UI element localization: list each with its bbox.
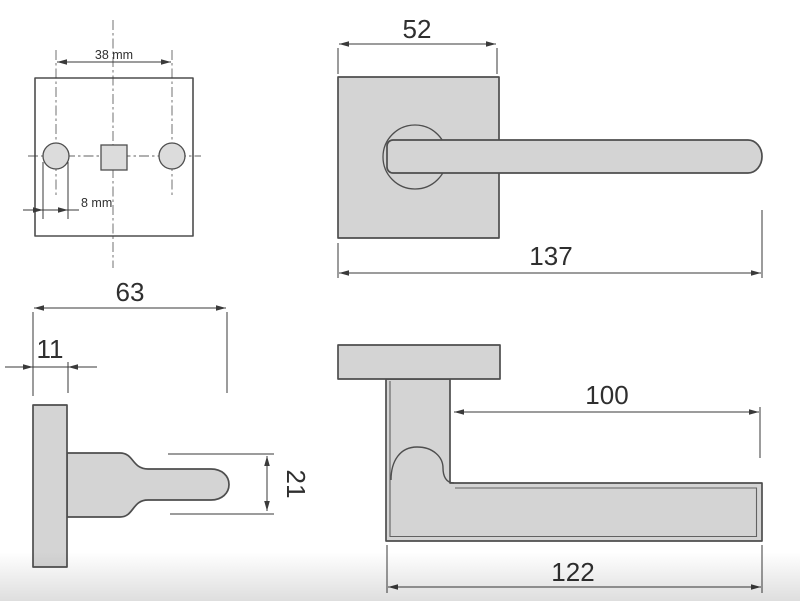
arrowhead-left [339, 270, 349, 276]
arrowhead-left [339, 41, 349, 47]
dim-label-rose-thickness: 11 [37, 334, 64, 364]
dim-hole-spacing: 38 mm [57, 48, 171, 65]
dim-label-rose-width: 52 [403, 14, 432, 44]
dim-label-projection: 63 [116, 277, 145, 307]
spindle-hole [101, 145, 127, 170]
dim-label-overall-length: 137 [529, 241, 572, 271]
dim-label-lever-height: 21 [281, 470, 311, 499]
dim-label-hole-diameter: 8 mm [81, 196, 112, 210]
side-view: 63 11 21 [5, 277, 311, 567]
dim-grip-length: 100 [454, 380, 760, 458]
arrowhead-left [454, 409, 464, 415]
lever-top [386, 379, 762, 541]
arrowhead-right [68, 364, 78, 370]
dim-label-grip-length: 100 [585, 380, 628, 410]
arrowhead-bottom [264, 501, 270, 511]
arrowhead-left [57, 59, 67, 65]
arrowhead-right [749, 409, 759, 415]
arrowhead-left [23, 364, 33, 370]
arrowhead-top [264, 456, 270, 466]
lever-front [387, 140, 762, 173]
front-view: 52 137 [338, 14, 762, 278]
technical-drawing-canvas: 38 mm 8 mm 52 137 [0, 0, 800, 601]
arrowhead-right [161, 59, 171, 65]
right-screw-hole [159, 143, 185, 169]
dim-rose-width: 52 [338, 14, 497, 74]
arrowhead-left [34, 305, 44, 311]
arrowhead-right [751, 270, 761, 276]
arrowhead-right [216, 305, 226, 311]
rose-top [338, 345, 500, 379]
dim-label-hole-spacing: 38 mm [95, 48, 133, 62]
dim-rose-thickness: 11 [5, 334, 97, 393]
back-plate-view: 38 mm 8 mm [23, 20, 201, 268]
left-screw-hole [43, 143, 69, 169]
bottom-shadow [0, 552, 800, 601]
rose-side [33, 405, 67, 567]
lever-side [67, 453, 229, 517]
arrowhead-right [486, 41, 496, 47]
